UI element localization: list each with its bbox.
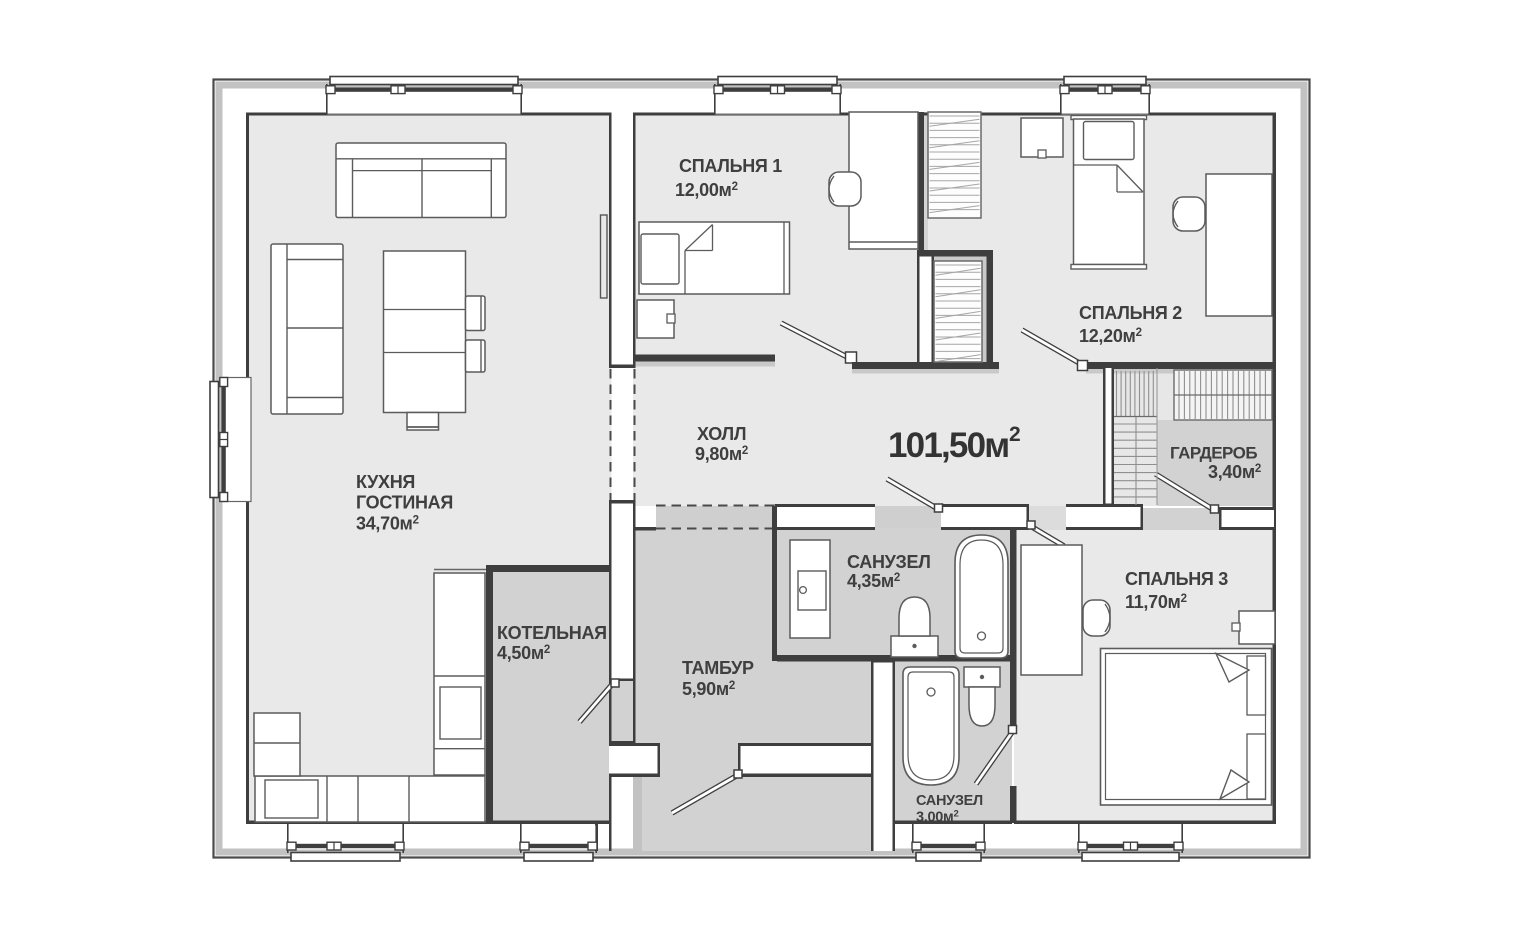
svg-text:СПАЛЬНЯ 2: СПАЛЬНЯ 2	[1079, 303, 1182, 323]
svg-text:11,70м2: 11,70м2	[1125, 592, 1187, 612]
svg-text:ТАМБУР: ТАМБУР	[682, 658, 754, 678]
svg-text:34,70м2: 34,70м2	[356, 514, 419, 534]
svg-text:ХОЛЛ: ХОЛЛ	[697, 424, 746, 444]
svg-text:12,00м2: 12,00м2	[675, 180, 738, 200]
svg-text:САНУЗЕЛ: САНУЗЕЛ	[847, 552, 931, 572]
svg-text:9,80м2: 9,80м2	[695, 444, 748, 464]
svg-text:3,00м2: 3,00м2	[916, 809, 958, 826]
svg-text:3,40м2: 3,40м2	[1208, 462, 1261, 482]
svg-text:ГОСТИНАЯ: ГОСТИНАЯ	[356, 493, 453, 513]
svg-text:2: 2	[1009, 423, 1021, 446]
svg-text:КУХНЯ: КУХНЯ	[356, 472, 415, 492]
svg-text:4,35м2: 4,35м2	[847, 571, 900, 591]
svg-text:СПАЛЬНЯ 1: СПАЛЬНЯ 1	[679, 156, 782, 176]
svg-text:5,90м2: 5,90м2	[682, 679, 735, 699]
svg-text:КОТЕЛЬНАЯ: КОТЕЛЬНАЯ	[497, 623, 607, 643]
svg-text:СПАЛЬНЯ 3: СПАЛЬНЯ 3	[1125, 569, 1228, 589]
svg-text:101,50м: 101,50м	[888, 426, 1008, 465]
svg-text:4,50м2: 4,50м2	[497, 643, 550, 663]
svg-text:САНУЗЕЛ: САНУЗЕЛ	[916, 793, 983, 809]
svg-text:12,20м2: 12,20м2	[1079, 326, 1142, 346]
svg-text:ГАРДЕРОБ: ГАРДЕРОБ	[1170, 444, 1257, 463]
